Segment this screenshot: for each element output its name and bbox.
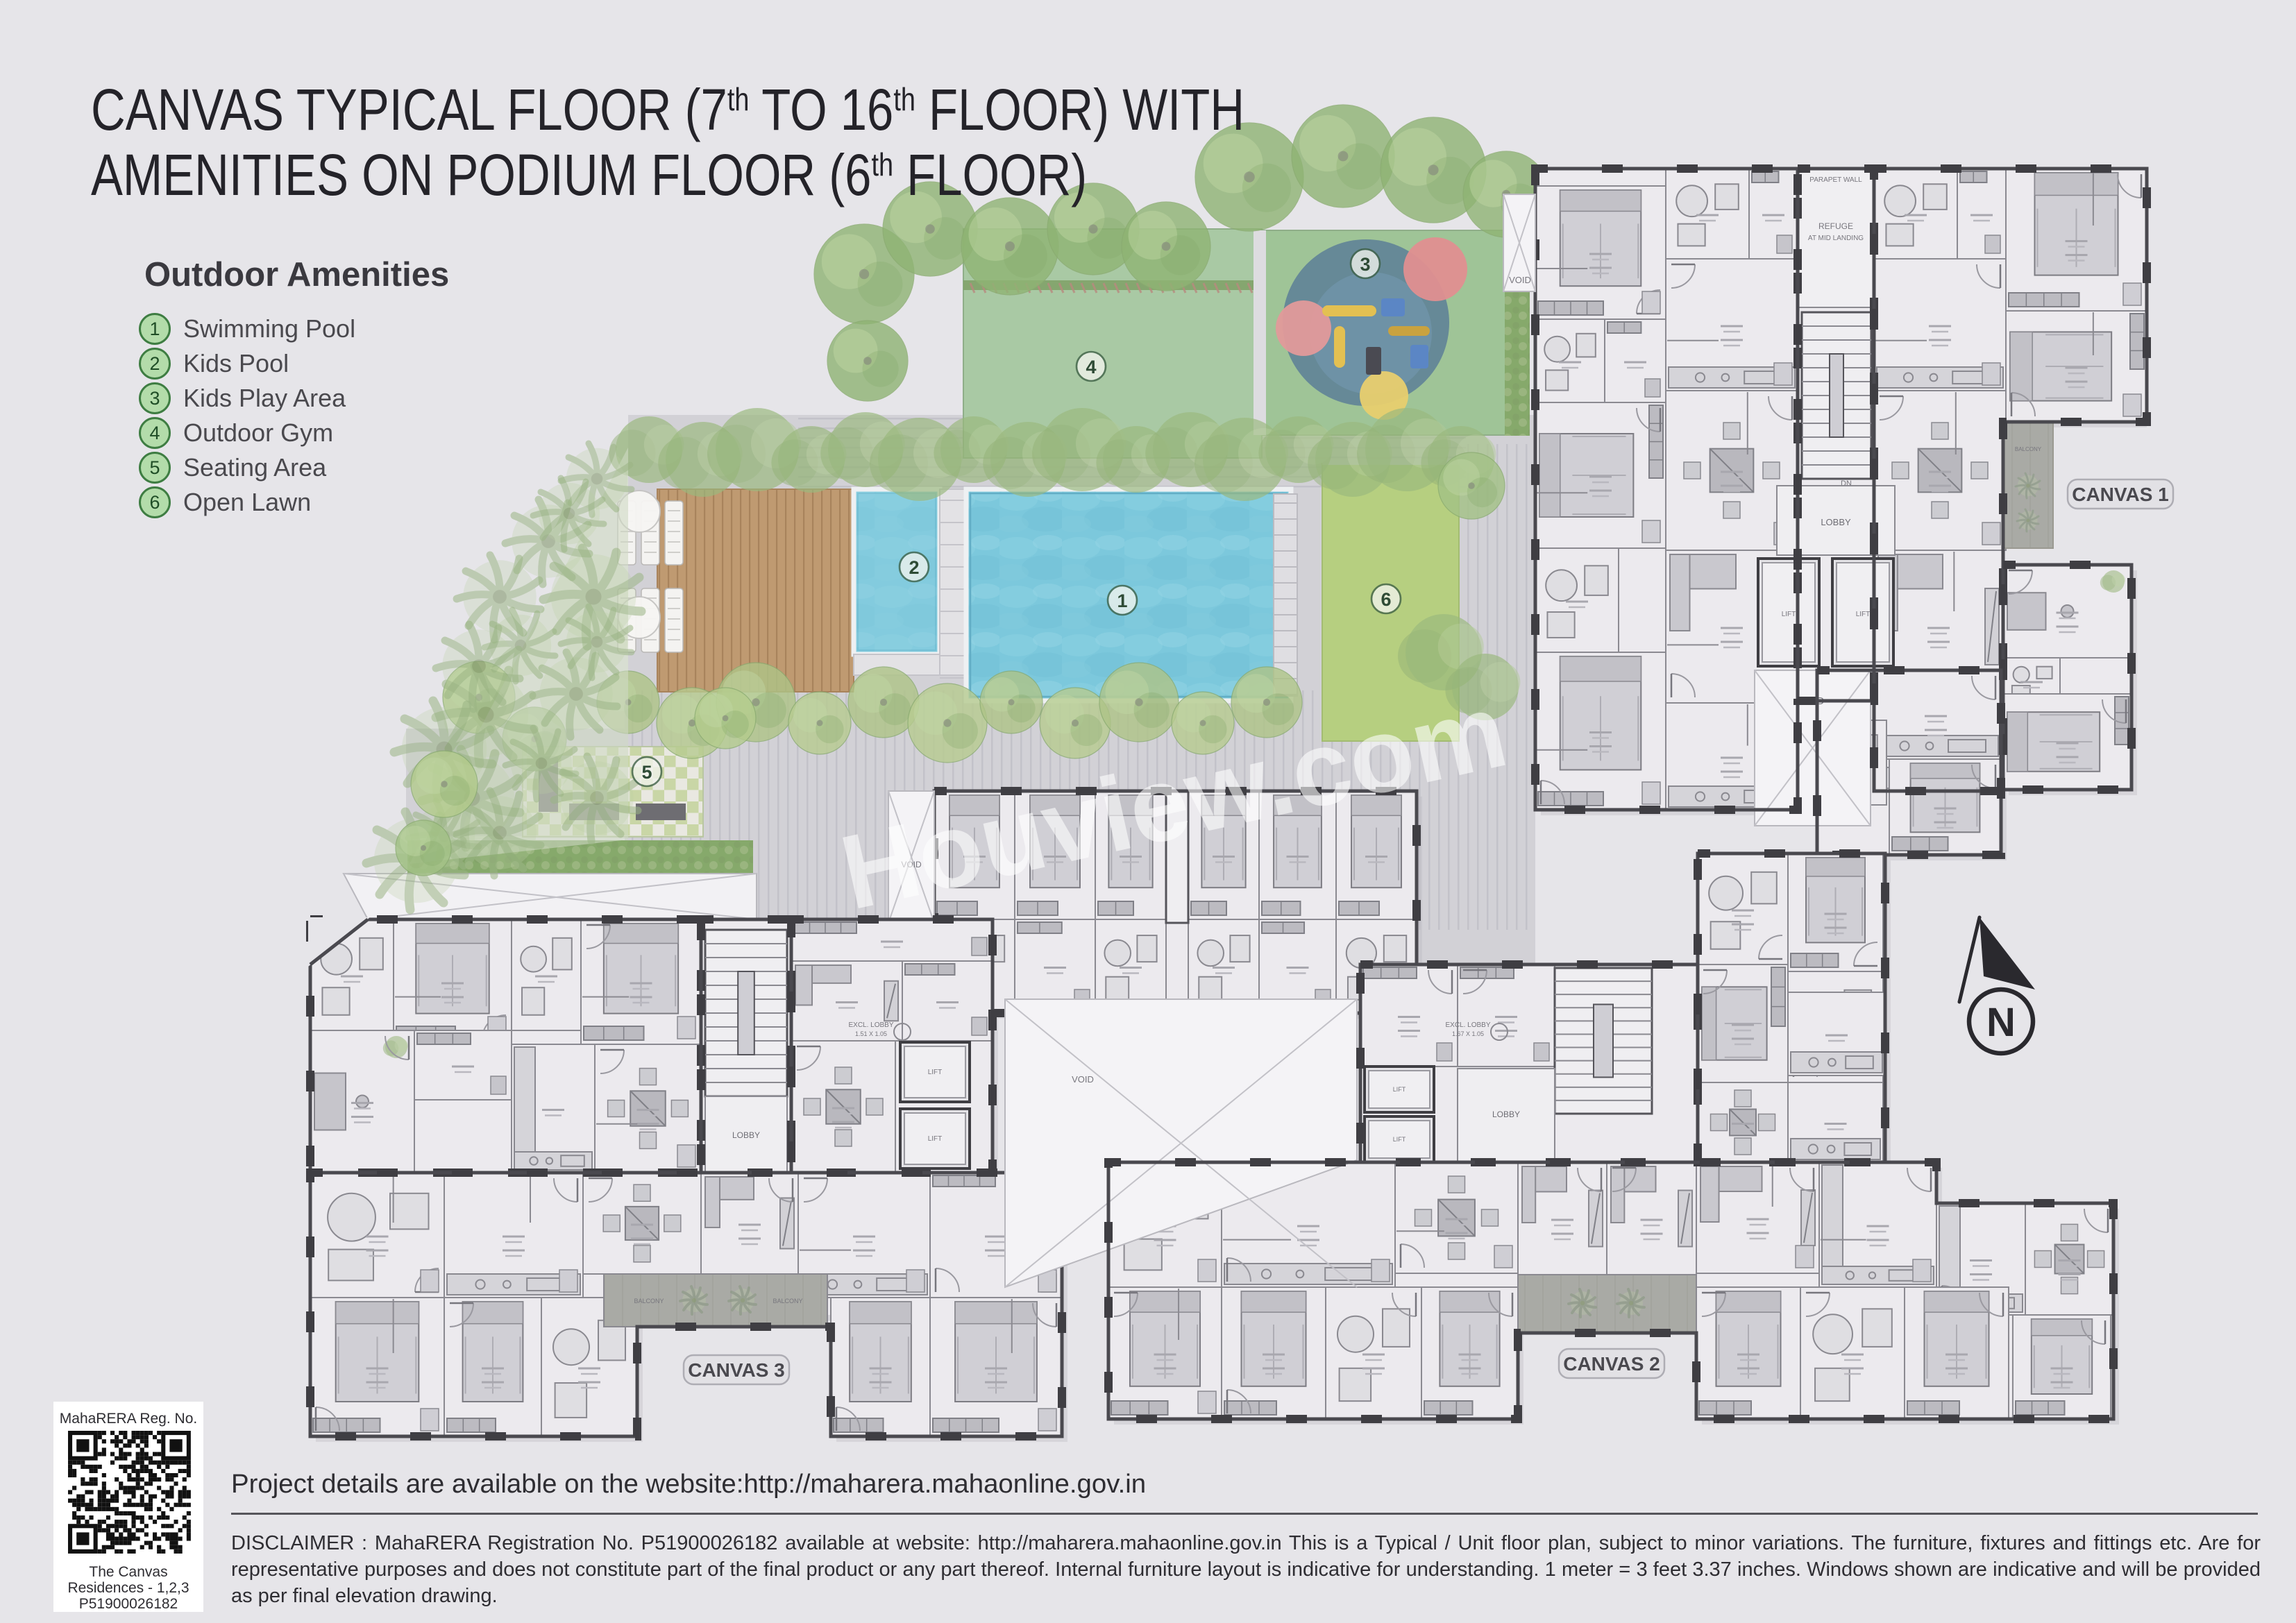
- svg-text:BALCONY: BALCONY: [634, 1298, 664, 1305]
- svg-text:1: 1: [1117, 590, 1127, 611]
- svg-text:2: 2: [909, 557, 919, 578]
- svg-text:P51900026182: P51900026182: [79, 1596, 178, 1612]
- svg-text:CANVAS 2: CANVAS 2: [1563, 1353, 1660, 1375]
- svg-text:The Canvas: The Canvas: [89, 1564, 167, 1580]
- svg-text:LIFT: LIFT: [1393, 1136, 1406, 1143]
- svg-text:LIFT: LIFT: [1856, 611, 1871, 618]
- svg-text:LOBBY: LOBBY: [732, 1130, 760, 1140]
- svg-text:1.67 X 1.05: 1.67 X 1.05: [1452, 1030, 1484, 1037]
- svg-text:BALCONY: BALCONY: [2015, 446, 2042, 452]
- svg-text:MahaRERA Reg. No.: MahaRERA Reg. No.: [60, 1411, 197, 1427]
- svg-text:6: 6: [1381, 589, 1391, 610]
- svg-text:LIFT: LIFT: [928, 1069, 943, 1076]
- svg-text:PARAPET WALL: PARAPET WALL: [1809, 176, 1862, 184]
- svg-text:3: 3: [1360, 254, 1370, 275]
- svg-text:EXCL. LOBBY: EXCL. LOBBY: [848, 1021, 893, 1029]
- svg-text:LIFT: LIFT: [1782, 611, 1796, 618]
- svg-text:LOBBY: LOBBY: [1492, 1110, 1520, 1119]
- svg-text:EXCL. LOBBY: EXCL. LOBBY: [1445, 1021, 1490, 1029]
- svg-text:CANVAS 3: CANVAS 3: [688, 1359, 785, 1381]
- svg-text:N: N: [1986, 1000, 2016, 1045]
- svg-text:4: 4: [1086, 357, 1096, 377]
- svg-text:AT MID LANDING: AT MID LANDING: [1808, 235, 1864, 242]
- svg-text:Residences - 1,2,3: Residences - 1,2,3: [67, 1580, 189, 1596]
- svg-text:BALCONY: BALCONY: [773, 1298, 802, 1305]
- svg-text:LOBBY: LOBBY: [1821, 517, 1851, 527]
- svg-text:LIFT: LIFT: [928, 1135, 943, 1143]
- svg-text:REFUGE: REFUGE: [1818, 221, 1853, 231]
- svg-text:VOID: VOID: [1072, 1074, 1094, 1085]
- svg-text:LIFT: LIFT: [1393, 1086, 1406, 1093]
- svg-text:VOID: VOID: [1509, 275, 1531, 285]
- svg-text:5: 5: [641, 762, 652, 783]
- svg-text:CANVAS 1: CANVAS 1: [2072, 484, 2169, 505]
- svg-text:1.51 X 1.05: 1.51 X 1.05: [855, 1030, 887, 1037]
